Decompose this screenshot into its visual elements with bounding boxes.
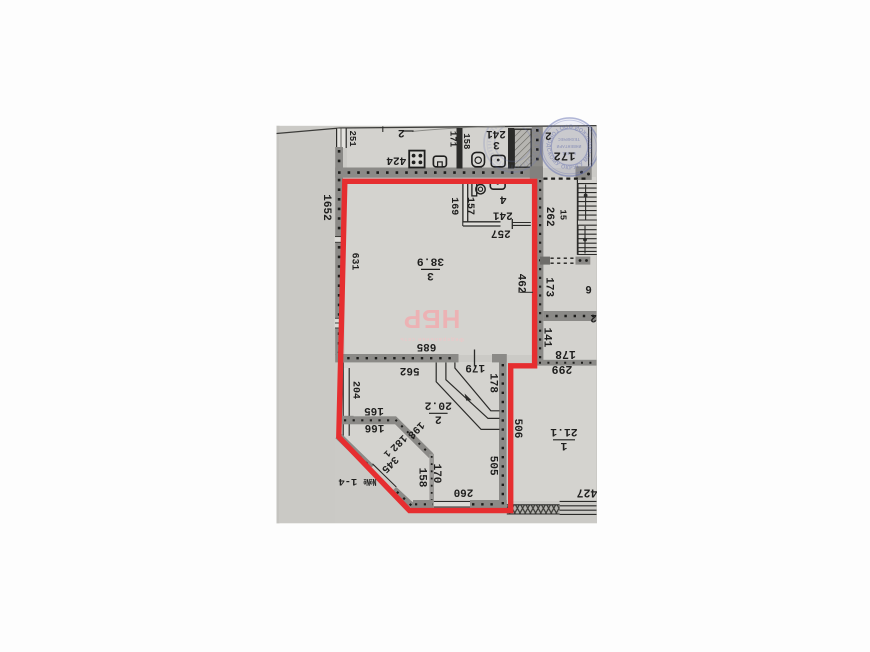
svg-text:2: 2: [398, 126, 405, 138]
svg-text:257: 257: [491, 227, 511, 239]
svg-text:21.1: 21.1: [550, 425, 578, 437]
svg-text:Федеральная сеть: Федеральная сеть: [399, 336, 464, 342]
svg-text:462: 462: [515, 274, 527, 294]
svg-text:166: 166: [365, 421, 385, 433]
svg-text:3: 3: [427, 269, 434, 281]
svg-text:ТЕХНИЧЕС: ТЕХНИЧЕС: [558, 136, 580, 142]
svg-text:178: 178: [487, 373, 499, 393]
svg-text:427: 427: [577, 485, 598, 498]
svg-text:38.9: 38.9: [417, 254, 445, 266]
svg-text:1: 1: [560, 439, 567, 451]
svg-text:№№ 1-4: №№ 1-4: [338, 475, 376, 487]
svg-text:2: 2: [545, 128, 552, 140]
svg-text:20.2: 20.2: [424, 398, 452, 410]
svg-text:505: 505: [487, 456, 499, 476]
svg-text:НБР: НБР: [403, 304, 460, 334]
svg-text:178: 178: [555, 347, 576, 360]
svg-text:2: 2: [590, 311, 597, 323]
svg-text:179: 179: [465, 361, 485, 373]
svg-text:262: 262: [543, 207, 555, 227]
svg-text:6: 6: [585, 282, 592, 294]
svg-text:165: 165: [364, 404, 384, 416]
svg-text:251: 251: [347, 130, 357, 147]
svg-text:241: 241: [493, 208, 513, 220]
svg-text:241: 241: [486, 127, 506, 139]
svg-text:4: 4: [500, 192, 507, 204]
svg-text:204: 204: [349, 381, 360, 399]
svg-text:1652: 1652: [320, 194, 332, 220]
svg-text:2: 2: [435, 413, 442, 425]
svg-text:631: 631: [349, 253, 360, 271]
svg-text:172: 172: [554, 149, 576, 163]
svg-text:141: 141: [541, 327, 553, 347]
svg-text:158: 158: [461, 133, 471, 149]
svg-text:562: 562: [400, 364, 420, 376]
svg-text:299: 299: [552, 362, 573, 375]
svg-text:170: 170: [430, 464, 442, 484]
svg-text:ИНВЕНТАРИ: ИНВЕНТАРИ: [556, 143, 581, 149]
svg-text:3: 3: [493, 138, 500, 150]
svg-text:424: 424: [386, 153, 406, 165]
svg-text:506: 506: [511, 419, 523, 439]
svg-text:158: 158: [416, 468, 428, 488]
svg-text:260: 260: [454, 486, 474, 498]
svg-text:157: 157: [464, 197, 475, 215]
svg-text:173: 173: [543, 277, 555, 297]
svg-text:171: 171: [447, 131, 457, 148]
svg-text:169: 169: [448, 197, 459, 215]
svg-text:15: 15: [558, 209, 568, 220]
